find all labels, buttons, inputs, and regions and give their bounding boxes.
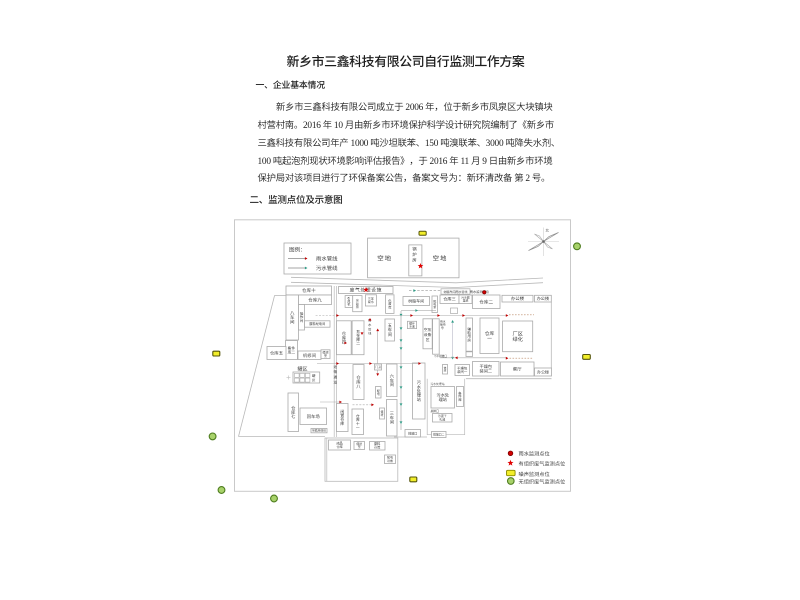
svg-text:间: 间 xyxy=(300,319,304,324)
svg-text:室: 室 xyxy=(358,445,361,449)
svg-text:房: 房 xyxy=(467,337,471,343)
svg-text:雨水监测点位: 雨水监测点位 xyxy=(470,289,490,294)
svg-text:无组织废气监测点位: 无组织废气监测点位 xyxy=(519,479,566,486)
svg-text:回车场: 回车场 xyxy=(307,414,321,420)
svg-text:一: 一 xyxy=(356,426,360,431)
svg-text:办公楼: 办公楼 xyxy=(537,296,550,302)
svg-text:装间二: 装间二 xyxy=(480,368,493,374)
svg-text:空地: 空地 xyxy=(433,254,448,263)
svg-text:二: 二 xyxy=(356,341,360,347)
svg-text:空地: 空地 xyxy=(377,254,392,263)
svg-text:班: 班 xyxy=(444,369,447,373)
svg-text:八: 八 xyxy=(356,384,361,390)
svg-text:仓库: 仓库 xyxy=(336,444,343,449)
svg-text:房: 房 xyxy=(412,258,417,264)
svg-text:罐区: 罐区 xyxy=(298,366,308,373)
svg-text:间: 间 xyxy=(290,320,295,326)
svg-text:站: 站 xyxy=(417,397,421,403)
svg-text:仓库三: 仓库三 xyxy=(443,297,456,303)
svg-text:设备: 设备 xyxy=(387,459,393,463)
svg-text:号: 号 xyxy=(441,326,444,330)
svg-text:仓库五: 仓库五 xyxy=(270,351,284,357)
svg-text:房: 房 xyxy=(356,304,359,309)
svg-text:室: 室 xyxy=(433,305,436,309)
svg-text:雨水管线: 雨水管线 xyxy=(316,255,338,263)
svg-text:装间一: 装间一 xyxy=(457,369,468,374)
svg-text:机: 机 xyxy=(347,303,350,307)
svg-text:办公楼: 办公楼 xyxy=(511,296,525,302)
svg-text:雨水监测点位: 雨水监测点位 xyxy=(519,451,550,458)
svg-text:餐厅: 餐厅 xyxy=(513,367,522,373)
svg-text:污水处理站: 污水处理站 xyxy=(431,382,445,386)
svg-text:树脂车间雨水管线: 树脂车间雨水管线 xyxy=(443,290,467,294)
svg-text:班: 班 xyxy=(380,413,383,417)
svg-text:噪声监测点位: 噪声监测点位 xyxy=(519,471,550,478)
svg-text:七: 七 xyxy=(291,414,296,420)
svg-text:树脂车间: 树脂车间 xyxy=(408,298,424,304)
svg-text:间: 间 xyxy=(388,332,392,338)
svg-text:一: 一 xyxy=(487,335,492,342)
svg-text:间: 间 xyxy=(390,420,394,426)
svg-text:污水排放口: 污水排放口 xyxy=(434,354,447,358)
svg-text:有组织废气监测点位: 有组织废气监测点位 xyxy=(519,461,566,468)
svg-text:废水: 废水 xyxy=(368,300,374,304)
svg-text:污水管线: 污水管线 xyxy=(316,264,338,272)
svg-text:地磅房值班: 地磅房值班 xyxy=(312,429,326,433)
svg-text:图例：: 图例： xyxy=(289,246,306,254)
svg-text:仓库: 仓库 xyxy=(374,445,381,450)
svg-text:仓库九: 仓库九 xyxy=(308,297,322,303)
svg-text:输: 输 xyxy=(334,369,338,375)
svg-text:理站: 理站 xyxy=(439,397,447,403)
svg-text:总排口: 总排口 xyxy=(431,409,440,413)
svg-text:门卫: 门卫 xyxy=(375,365,381,369)
svg-text:化池: 化池 xyxy=(439,416,445,421)
svg-text:仓库十: 仓库十 xyxy=(302,288,316,294)
svg-text:原料配电间: 原料配电间 xyxy=(309,321,325,326)
svg-text:绿化: 绿化 xyxy=(513,336,523,343)
svg-text:室: 室 xyxy=(324,353,327,358)
svg-text:间: 间 xyxy=(390,382,394,388)
svg-text:仓库二: 仓库二 xyxy=(479,299,493,305)
svg-text:库二: 库二 xyxy=(288,349,296,355)
svg-text:排放口: 排放口 xyxy=(408,430,417,435)
svg-text:水池: 水池 xyxy=(409,324,415,328)
svg-text:排放口二: 排放口二 xyxy=(433,433,444,437)
svg-text:集池: 集池 xyxy=(463,299,469,303)
svg-text:道: 道 xyxy=(334,380,338,386)
svg-text:电: 电 xyxy=(377,392,380,396)
svg-text:区: 区 xyxy=(426,338,430,343)
svg-text:库: 库 xyxy=(340,421,344,427)
svg-text:机修间: 机修间 xyxy=(303,353,316,359)
svg-text:办公楼: 办公楼 xyxy=(537,369,549,375)
